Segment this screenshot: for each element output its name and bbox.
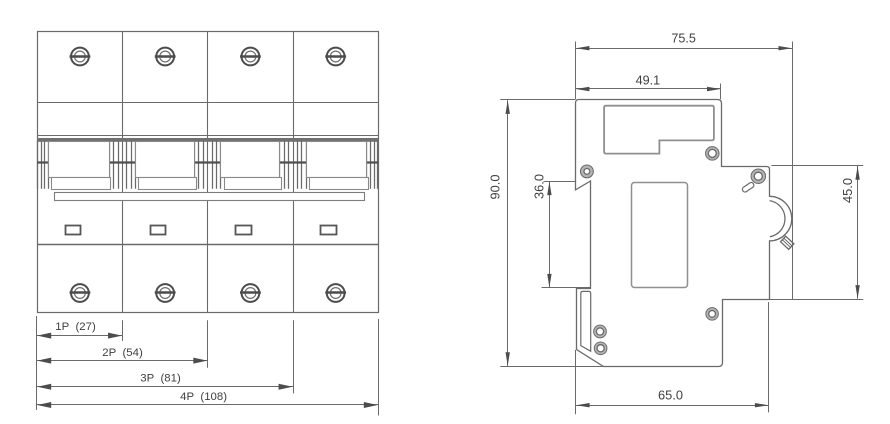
svg-text:2P (54): 2P (54) (102, 347, 143, 359)
svg-text:36.0: 36.0 (531, 174, 546, 199)
svg-text:49.1: 49.1 (636, 73, 661, 87)
svg-text:65.0: 65.0 (658, 388, 683, 403)
svg-text:90.0: 90.0 (488, 175, 503, 200)
svg-text:3P (81): 3P (81) (140, 373, 181, 385)
svg-text:75.5: 75.5 (671, 32, 696, 46)
svg-text:4P (108): 4P (108) (180, 391, 227, 403)
svg-text:45.0: 45.0 (840, 178, 855, 203)
svg-text:1P (27): 1P (27) (55, 321, 96, 333)
